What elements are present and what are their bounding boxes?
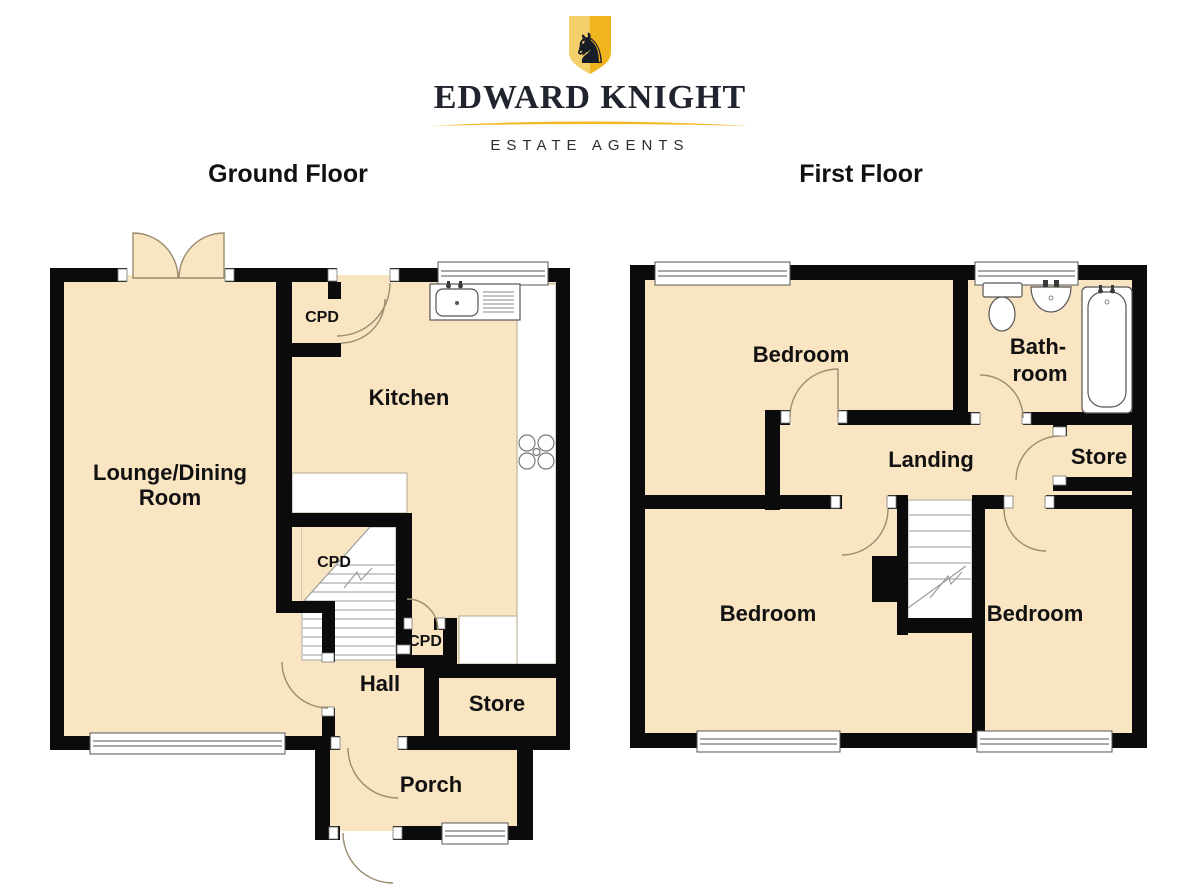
chimney-block <box>872 556 905 602</box>
bedroom-left-label: Bedroom <box>720 601 817 626</box>
cpd-top-label: CPD <box>305 309 339 326</box>
kitchen-label: Kitchen <box>369 385 450 410</box>
lounge-window <box>90 733 285 754</box>
bathtub-icon <box>1082 285 1132 413</box>
staircase-ground <box>302 527 396 660</box>
front-door-arc <box>343 833 393 883</box>
lounge-label-line2: Room <box>139 485 201 510</box>
bathroom-window <box>975 262 1078 285</box>
porch-window <box>442 823 508 844</box>
ground-floor-plan: Ground Floor <box>50 160 570 883</box>
lounge-label-line1: Lounge/Dining <box>93 460 247 485</box>
bathroom-label-line1: Bath- <box>1010 334 1066 359</box>
cpd-stairs-label: CPD <box>317 554 351 571</box>
store-ff-label: Store <box>1071 444 1127 469</box>
staircase-first <box>908 500 972 620</box>
bedroom-front-window <box>655 262 790 285</box>
bedroom-left-window <box>697 731 840 752</box>
store-gf-label: Store <box>469 691 525 716</box>
patio-double-door <box>133 233 224 278</box>
hall-label: Hall <box>360 671 400 696</box>
first-floor-plan: First Floor <box>630 160 1147 752</box>
bedroom-front-label: Bedroom <box>753 342 850 367</box>
landing-label: Landing <box>888 447 974 472</box>
kitchen-window <box>438 262 548 285</box>
hatch-opening <box>292 473 407 513</box>
cpd-hall-label: CPD <box>408 633 442 650</box>
ground-floor-title: Ground Floor <box>208 160 368 188</box>
first-floor-title: First Floor <box>799 160 923 188</box>
porch-label: Porch <box>400 772 462 797</box>
floor-plans-drawing: Ground Floor <box>0 0 1200 891</box>
sink-icon <box>430 281 520 320</box>
bedroom-right-window <box>977 731 1112 752</box>
floorplan-page: ♞ EDWARD KNIGHT ESTATE AGENTS Ground Flo… <box>0 0 1200 891</box>
bedroom-right-label: Bedroom <box>987 601 1084 626</box>
bathroom-label-line2: room <box>1013 361 1068 386</box>
